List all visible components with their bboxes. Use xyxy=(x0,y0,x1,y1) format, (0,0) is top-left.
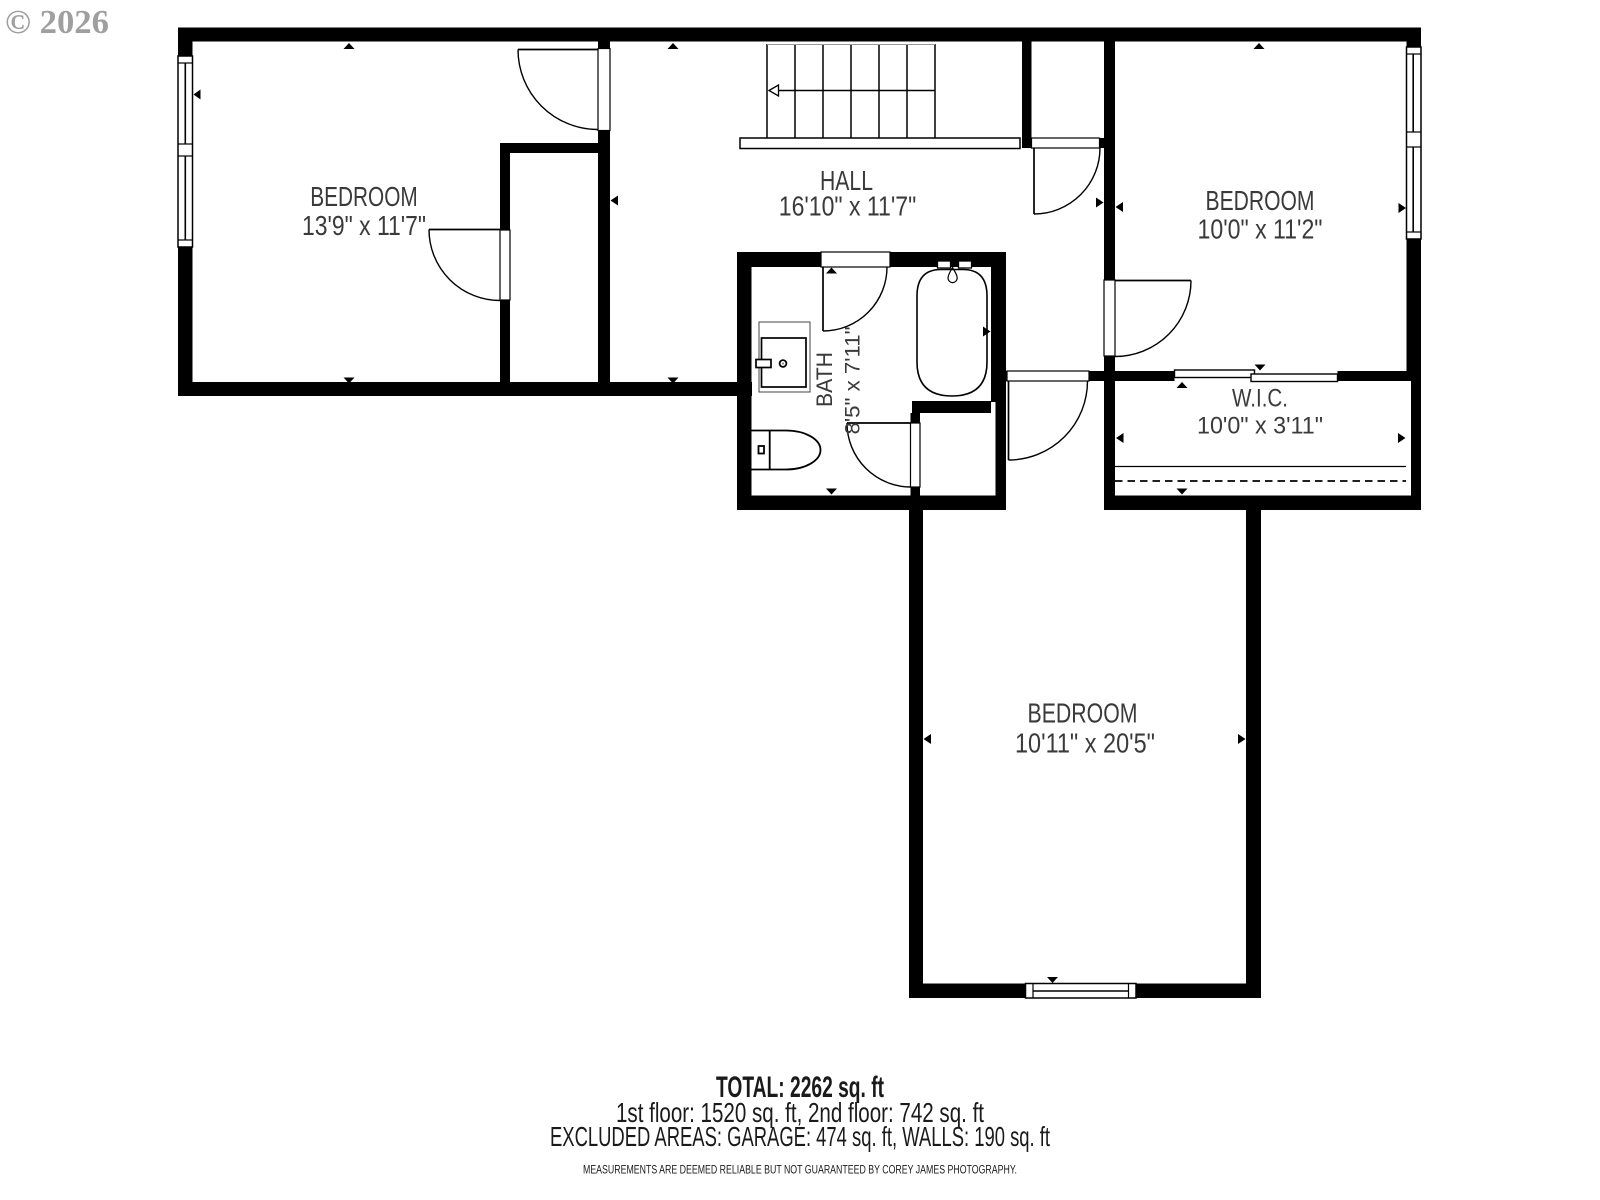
svg-text:© 2026: © 2026 xyxy=(5,4,109,41)
svg-text:10'0" x 3'11": 10'0" x 3'11" xyxy=(1197,413,1323,440)
svg-text:W.I.C.: W.I.C. xyxy=(1232,385,1288,413)
svg-text:BEDROOM: BEDROOM xyxy=(310,181,418,212)
svg-text:MEASUREMENTS ARE DEEMED RELIAB: MEASUREMENTS ARE DEEMED RELIABLE BUT NOT… xyxy=(583,1165,1017,1177)
svg-text:16'10" x 11'7": 16'10" x 11'7" xyxy=(779,191,917,222)
svg-text:BEDROOM: BEDROOM xyxy=(1028,698,1138,729)
svg-text:10'0" x 11'2": 10'0" x 11'2" xyxy=(1198,214,1323,245)
svg-text:BEDROOM: BEDROOM xyxy=(1206,185,1315,216)
svg-text:10'11" x 20'5": 10'11" x 20'5" xyxy=(1015,728,1155,759)
svg-text:EXCLUDED AREAS: GARAGE: 474 sq: EXCLUDED AREAS: GARAGE: 474 sq. ft, WALL… xyxy=(550,1121,1050,1152)
svg-text:13'9" x 11'7": 13'9" x 11'7" xyxy=(302,210,426,241)
svg-text:BATH: BATH xyxy=(812,352,837,407)
svg-text:8'5" x 7'11": 8'5" x 7'11" xyxy=(842,327,865,435)
